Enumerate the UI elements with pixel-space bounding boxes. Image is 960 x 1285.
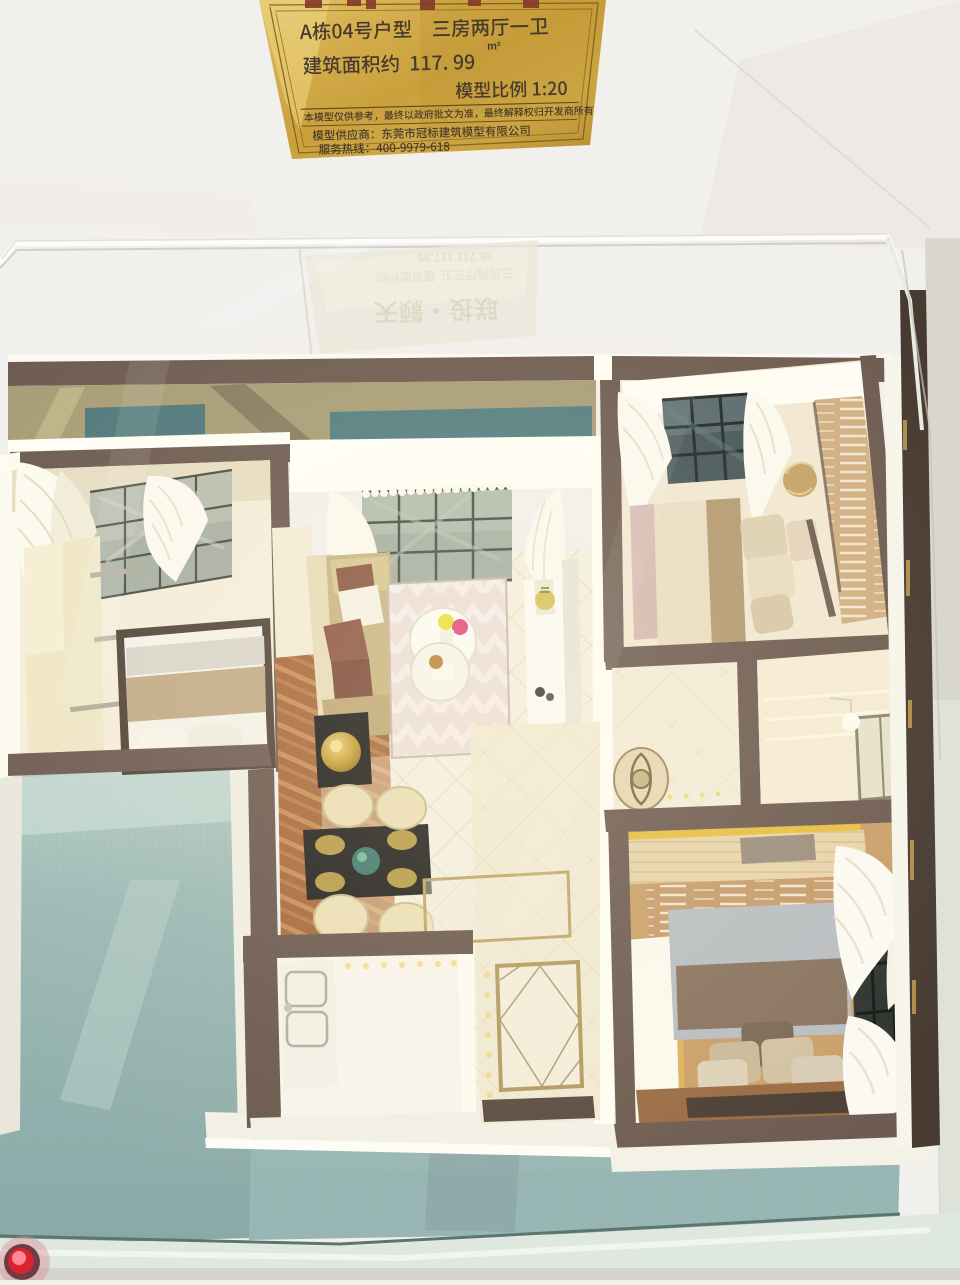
svg-text:m²: m² — [487, 40, 501, 52]
svg-text:66.711 117.99: 66.711 117.99 — [417, 248, 493, 265]
